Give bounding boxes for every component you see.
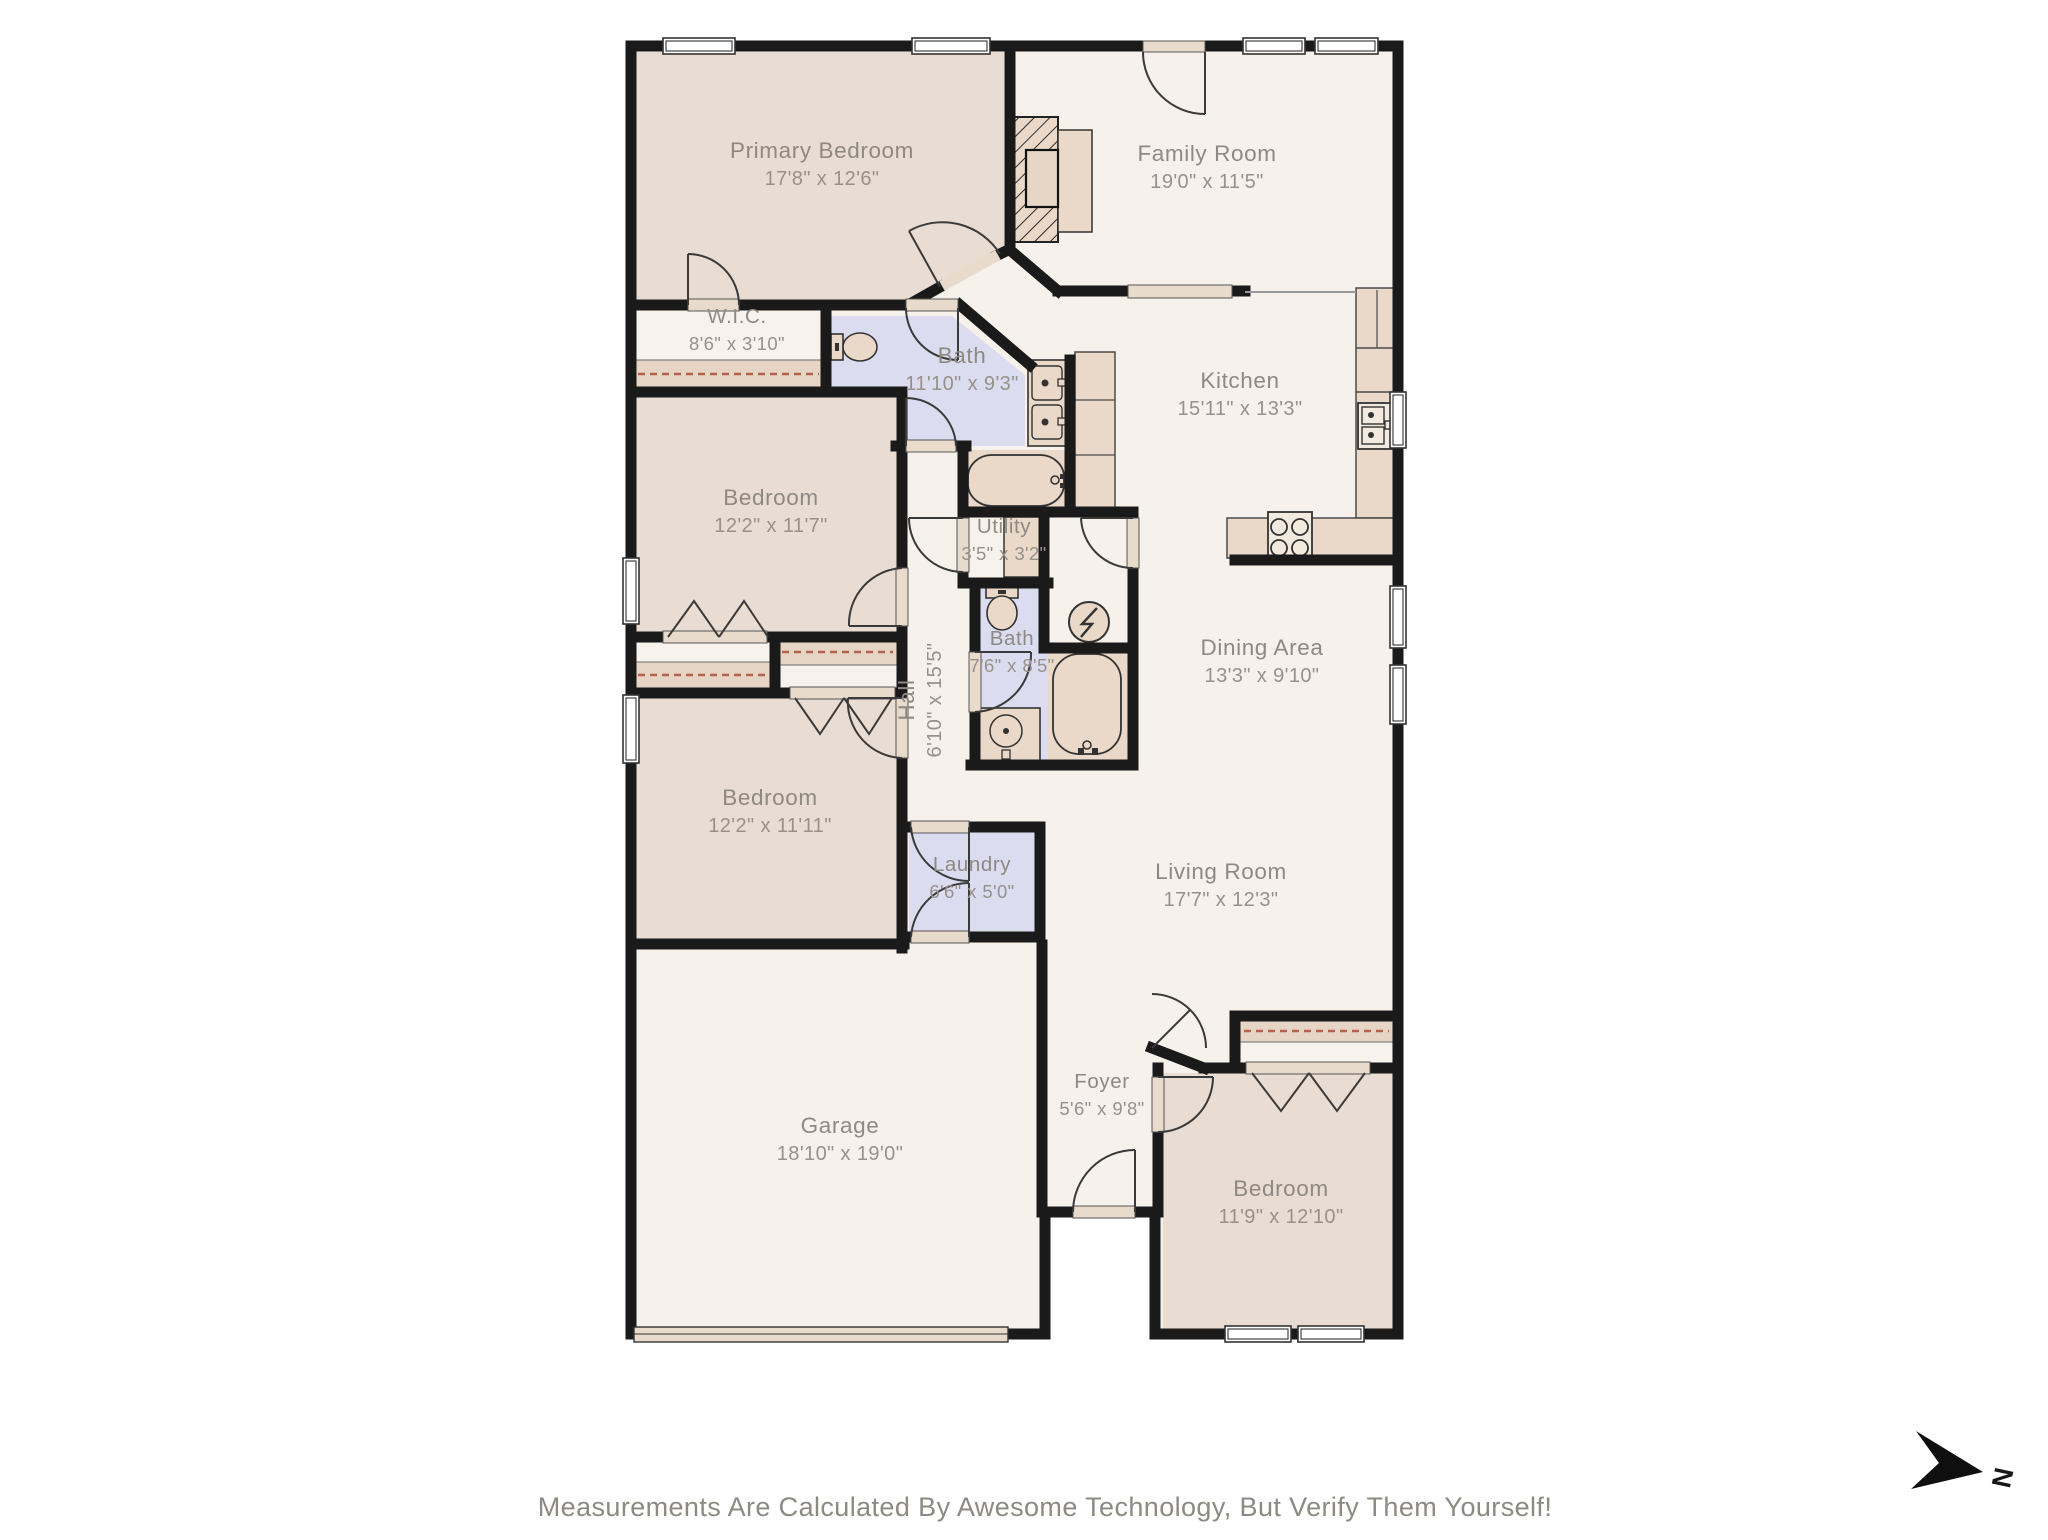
window-icon [663,38,735,54]
svg-text:19'0" x 11'5": 19'0" x 11'5" [1150,171,1263,193]
svg-text:15'11" x 13'3": 15'11" x 13'3" [1178,398,1303,420]
window-icon [1225,1326,1291,1342]
svg-text:17'7" x 12'3": 17'7" x 12'3" [1164,889,1279,911]
svg-text:8'6" x 3'10": 8'6" x 3'10" [689,333,785,354]
svg-text:Dining Area: Dining Area [1201,635,1324,660]
svg-text:Bedroom: Bedroom [722,785,818,810]
svg-text:12'2" x 11'7": 12'2" x 11'7" [714,515,827,537]
svg-text:Bedroom: Bedroom [1233,1176,1329,1201]
pantry-cabinet-icon [1075,352,1115,508]
bathtub-icon [1053,654,1121,755]
svg-text:6'6" x 5'0": 6'6" x 5'0" [929,881,1014,902]
window-icon [1390,586,1406,648]
svg-text:13'3" x 9'10": 13'3" x 9'10" [1205,665,1320,687]
svg-text:11'9" x 12'10": 11'9" x 12'10" [1219,1206,1344,1228]
svg-text:Hall: Hall [894,679,919,720]
toilet-icon [986,586,1018,630]
svg-text:5'6" x 9'8": 5'6" x 9'8" [1059,1098,1144,1119]
window-icon [623,695,639,763]
svg-text:17'8" x 12'6": 17'8" x 12'6" [765,168,880,190]
svg-text:Foyer: Foyer [1074,1070,1129,1093]
window-icon [1390,665,1406,724]
svg-text:Garage: Garage [801,1113,880,1138]
svg-text:18'10" x 19'0": 18'10" x 19'0" [777,1143,903,1165]
svg-text:6'10" x 15'5": 6'10" x 15'5" [924,643,946,758]
disclaimer-text: Measurements Are Calculated By Awesome T… [0,1492,2048,1523]
compass: N [1890,1410,2048,1540]
svg-text:11'10" x 9'3": 11'10" x 9'3" [905,373,1018,395]
svg-text:Bath: Bath [990,627,1035,650]
svg-text:Living Room: Living Room [1155,859,1287,884]
toilet-icon [831,333,877,361]
svg-text:3'5" x 3'2": 3'5" x 3'2" [961,543,1046,564]
floorplan-svg: Primary Bedroom17'8" x 12'6"Family Room1… [0,0,2048,1536]
svg-text:Laundry: Laundry [933,853,1011,876]
vanity-sink-icon [973,708,1040,762]
garage-door-icon [634,1327,1008,1342]
window-icon [1243,38,1305,54]
svg-text:W.I.C.: W.I.C. [707,305,766,328]
svg-text:Family Room: Family Room [1137,141,1276,166]
window-icon [1298,1326,1364,1342]
window-icon [912,38,990,54]
north-arrow-icon [1890,1410,2048,1540]
svg-text:Kitchen: Kitchen [1200,368,1279,393]
bathtub-icon [968,455,1068,506]
fireplace-icon [1012,117,1092,242]
svg-text:Bath: Bath [938,343,987,368]
electrical-panel-icon [1069,602,1109,642]
svg-text:12'2" x 11'11": 12'2" x 11'11" [708,815,831,837]
window-icon [1315,38,1378,54]
svg-text:Bedroom: Bedroom [723,485,819,510]
floorplan: Primary Bedroom17'8" x 12'6"Family Room1… [0,0,2048,1536]
window-icon [1390,392,1406,448]
window-icon [623,558,639,624]
svg-text:Utility: Utility [977,515,1031,538]
double-vanity-icon [1028,360,1070,446]
svg-text:Primary Bedroom: Primary Bedroom [730,138,914,163]
svg-text:7'6" x 8'5": 7'6" x 8'5" [969,655,1054,676]
